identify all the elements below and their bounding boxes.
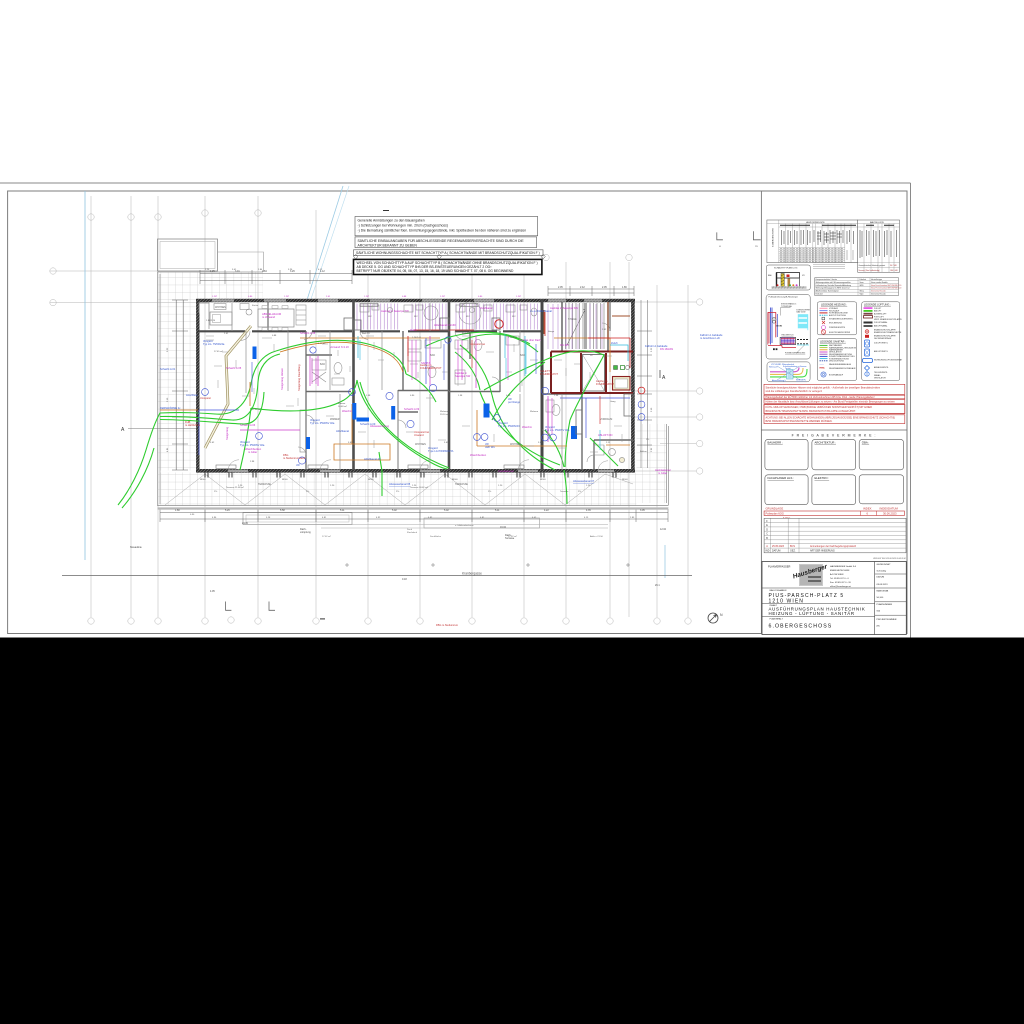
svg-text:Terrasse: Terrasse	[505, 537, 515, 540]
svg-text:1.20³: 1.20³	[516, 295, 521, 298]
svg-text:Gang: Gang	[610, 401, 616, 403]
svg-text:Generelle Anmäßungen zu den Ba: Generelle Anmäßungen zu den Bauangaben	[358, 219, 425, 223]
svg-text:2.42: 2.42	[580, 286, 585, 289]
svg-text:Attika +21.50: Attika +21.50	[590, 535, 604, 538]
svg-text:GEZEICHNET: GEZEICHNET	[877, 564, 892, 566]
svg-text:2%: 2%	[578, 491, 581, 493]
svg-text:PROJEKTNUMMER: PROJEKTNUMMER	[877, 619, 897, 621]
svg-text:VENTILATOR: VENTILATOR	[874, 377, 886, 380]
svg-text:Sämtliche brandgeschützten Häu: Sämtliche brandgeschützten Häuser sind m…	[766, 386, 881, 389]
svg-text:WOHNEN: WOHNEN	[215, 306, 226, 309]
svg-text:m²: m²	[590, 354, 593, 357]
svg-text:6.OBERGESCHOSS: 6.OBERGESCHOSS	[769, 624, 833, 630]
svg-text:2%: 2%	[214, 491, 217, 493]
svg-text:Waschbecken: Waschbecken	[470, 453, 487, 457]
svg-text:INDEX: INDEX	[863, 507, 872, 511]
svg-text:AUSSENLUFT: AUSSENLUFT	[874, 312, 887, 315]
svg-text:INDEXDATUM: INDEXDATUM	[880, 507, 899, 511]
svg-text:ZULUFTVENTIL: ZULUFTVENTIL	[874, 343, 888, 345]
svg-text:BODENABLAUF: BODENABLAUF	[829, 373, 844, 376]
svg-text:Bad 4.9: Bad 4.9	[362, 333, 370, 335]
svg-text:WC: WC	[512, 316, 516, 318]
svg-text:ZULUFT: ZULUFT	[874, 308, 882, 310]
svg-text:Steigstrang: Steigstrang	[225, 426, 229, 440]
svg-text:FUSSBODENHEIZUNG: FUSSBODENHEIZUNG	[785, 353, 806, 355]
svg-text:AUFPUTZLEITUNG: AUFPUTZLEITUNG	[829, 314, 846, 317]
svg-text:ENTLEERUNG: ENTLEERUNG	[829, 322, 842, 324]
svg-text:6.OBERGESCHOSS: 6.OBERGESCHOSS	[773, 228, 775, 247]
svg-text:RD40: RD40	[540, 479, 546, 481]
svg-text:12.02: 12.02	[660, 528, 667, 531]
svg-text:2.26/2.01: 2.26/2.01	[508, 337, 518, 339]
svg-text:BRANDSCHUTZKLAPPE: BRANDSCHUTZKLAPPE	[874, 329, 896, 332]
svg-text:Dachfläche: Dachfläche	[430, 536, 442, 538]
svg-text:Zimmer: Zimmer	[338, 402, 346, 405]
svg-text:ARCHITEKTUR BEKANNT ZU GEBEN: ARCHITEKTUR BEKANNT ZU GEBEN	[358, 244, 418, 248]
svg-text:Abluftventilator Sammelgerät: Abluftventilator Sammelgerät	[816, 290, 840, 293]
svg-text:5.02: 5.02	[444, 509, 449, 512]
svg-text:1.80: 1.80	[175, 509, 180, 512]
svg-text:TELLERVENTIL: TELLERVENTIL	[874, 372, 888, 374]
svg-text:WC: WC	[368, 316, 372, 318]
svg-text:SÄMTLICHE EINBAUANGABEN FÜR AB: SÄMTLICHE EINBAUANGABEN FÜR ABSCHLIESSEN…	[358, 239, 525, 243]
svg-text:Type LG PWRSONTA: Type LG PWRSONTA	[428, 449, 454, 453]
svg-text:Vexo Front Insertion BETONFIXE: Vexo Front Insertion BETONFIXE 120	[871, 284, 901, 287]
svg-text:Typ LG. PWRSV 40a: Typ LG. PWRSV 40a	[545, 428, 570, 432]
svg-text:Schacht A.09: Schacht A.09	[360, 422, 376, 426]
svg-text:BRANDSCHUTZKLAPPE: BRANDSCHUTZKLAPPE	[874, 334, 896, 337]
svg-text:DATUM: DATUM	[877, 576, 885, 579]
svg-text:Schacht A 05: Schacht A 05	[226, 366, 242, 370]
svg-text:Abwasserstrang lt.: Abwasserstrang lt.	[772, 379, 786, 382]
svg-text:4.35: 4.35	[586, 509, 591, 512]
svg-text:Typ LG. PWRSON: Typ LG. PWRSON	[498, 424, 520, 428]
svg-text:SÄMTLICHE WOHNUNGSSCHACHTE MIT: SÄMTLICHE WOHNUNGSSCHACHTE MIT SCHACHTTY…	[356, 251, 540, 255]
svg-text:41.02 m²: 41.02 m²	[252, 408, 261, 411]
svg-text:Herstellertype: Herstellertype	[871, 278, 882, 281]
svg-text:Polierplan 6OG: Polierplan 6OG	[766, 512, 784, 516]
svg-text:HKV-VERTLG: HKV-VERTLG	[782, 334, 794, 336]
svg-text:(H): (H)	[877, 626, 880, 628]
svg-text:ELEKTROHEIZKÖRPER: ELEKTROHEIZKÖRPER	[829, 331, 851, 334]
svg-text:REGENWASSER-NOTABLAUF: REGENWASSER-NOTABLAUF	[829, 367, 857, 370]
svg-text:Fabrikat: Fabrikat	[860, 278, 867, 281]
svg-text:Ausblas in Saveripa SW: Ausblas in Saveripa SW	[381, 309, 409, 313]
svg-text:RD40: RD40	[368, 479, 374, 481]
svg-text:Waschm.: Waschm.	[342, 409, 353, 413]
svg-text:ART DER ÄNDERUNG: ART DER ÄNDERUNG	[810, 550, 835, 553]
svg-text:BRANDSCHUTZMANSCHETTE: BRANDSCHUTZMANSCHETTE	[874, 331, 902, 334]
svg-text:WOHNGRPL: WOHNGRPL	[796, 380, 806, 382]
svg-text:───: ───	[819, 364, 825, 366]
svg-text:F R E I G A B E V E R M E R K: F R E I G A B E V E R M E R K E :	[792, 433, 877, 437]
svg-text:Ausblas über Dach: Ausblas über Dach	[519, 338, 541, 342]
svg-text:ABSAUGVENTIL: ABSAUGVENTIL	[874, 366, 889, 369]
svg-text:LEGENDE LÜFTUNG :: LEGENDE LÜFTUNG :	[864, 302, 891, 306]
svg-text:Fußbodenheizung/E-Heizkörper: Fußbodenheizung/E-Heizkörper	[769, 295, 799, 298]
svg-text:ELEKTRO :: ELEKTRO :	[815, 476, 830, 480]
svg-text:m.Vorwand: m.Vorwand	[262, 315, 276, 319]
svg-text:2.84: 2.84	[262, 270, 267, 273]
svg-text:ABLUFTVENTIL: ABLUFTVENTIL	[874, 350, 888, 353]
svg-text:m.Helzluftum: m.Helzluftum	[185, 423, 200, 427]
svg-text:1.20³: 1.20³	[284, 295, 289, 298]
svg-text:ZIMMER: ZIMMER	[330, 418, 340, 421]
svg-text:Fußbodenhzg.-Verteiler/Sammler: Fußbodenhzg.-Verteiler/Sammler/Anbindung	[816, 284, 852, 287]
svg-text:FOHNBKUPOT: FOHNBKUPOT	[596, 382, 614, 386]
svg-text:Dach: Dach	[407, 529, 413, 531]
svg-text:Intervento Recedo: Intervento Recedo	[871, 290, 886, 293]
svg-text:50;100: 50;100	[877, 597, 884, 599]
svg-text:Ausblaskanal: Ausblaskanal	[498, 469, 514, 473]
svg-text:HAUSBERGER GmbH 3-6: HAUSBERGER GmbH 3-6	[830, 565, 857, 568]
svg-text:PUMPENGRUPPE: PUMPENGRUPPE	[829, 327, 846, 329]
svg-text:Vexo comfort flexible: Vexo comfort flexible	[871, 281, 888, 284]
svg-text:2.26/2.01: 2.26/2.01	[412, 337, 422, 339]
svg-text:1.25: 1.25	[210, 270, 215, 273]
svg-text:4.05: 4.05	[210, 590, 215, 593]
svg-text:Stiege: Stiege	[548, 330, 555, 333]
svg-text:WOHNEN: WOHNEN	[415, 443, 426, 446]
svg-text:D: D	[766, 528, 768, 531]
svg-text:2%: 2%	[306, 491, 309, 493]
svg-text:FOHNSERKUPOT: FOHNSERKUPOT	[420, 366, 442, 370]
svg-text:WC: WC	[466, 316, 470, 318]
svg-text:BAD: BAD	[430, 354, 435, 357]
svg-text:Vorraum: Vorraum	[800, 365, 807, 368]
svg-text:24.80: 24.80	[242, 522, 249, 525]
svg-text:WOHNUNGSLÜFTUNGSGERÄT: WOHNUNGSLÜFTUNGSGERÄT	[874, 359, 903, 362]
svg-text:5.11: 5.11	[340, 509, 345, 512]
svg-text:WC: WC	[414, 316, 418, 318]
svg-text:-) Schlützungen bei Wohnungen: -) Schlützungen bei Wohnungen min. 20cm …	[358, 224, 448, 228]
svg-text:Saveripa SW: Saveripa SW	[455, 374, 471, 378]
svg-text:Abluftkanal: Abluftkanal	[336, 429, 349, 433]
svg-text:HEIZKÖRPERLISTE: HEIZKÖRPERLISTE	[806, 221, 825, 224]
svg-text:VERZ. BRANDSCHUTZKLAPPE: VERZ. BRANDSCHUTZKLAPPE	[874, 318, 902, 321]
svg-text:Niveaulinie: Niveaulinie	[130, 546, 142, 549]
svg-text:m.Anschluss Luft: m.Anschluss Luft	[700, 336, 720, 340]
svg-text:Abwasserkanal 05: Abwasserkanal 05	[389, 482, 411, 486]
svg-text:Küche: Küche	[252, 305, 259, 307]
svg-text:Bad 4.9: Bad 4.9	[462, 333, 470, 335]
svg-text:Fax. 01/616 87 0 - 20: Fax. 01/616 87 0 - 20	[830, 582, 852, 584]
svg-text:KANAL-: KANAL-	[874, 374, 881, 377]
svg-text:Steigstrang Rauchfang: Steigstrang Rauchfang	[297, 364, 301, 391]
svg-text:10 kW: 10 kW	[776, 326, 783, 328]
svg-text:0.18: 0.18	[402, 578, 407, 581]
svg-text:Vexo: Vexo	[860, 282, 864, 284]
svg-text:BAUTEILLISTE: BAUTEILLISTE	[870, 221, 885, 224]
svg-text:3.05: 3.05	[640, 509, 645, 512]
svg-text:2.05: 2.05	[558, 286, 563, 289]
svg-text:FÄKALIENHEBEANLAGE: FÄKALIENHEBEANLAGE	[829, 363, 852, 366]
svg-text:TERRASSE: TERRASSE	[258, 483, 271, 486]
svg-text:DATUM: DATUM	[772, 550, 780, 553]
svg-text:Typ LG. 75/60/24a: Typ LG. 75/60/24a	[203, 342, 225, 346]
svg-text:RD40: RD40	[622, 479, 628, 481]
svg-text:Schacht A 09: Schacht A 09	[404, 407, 420, 411]
svg-text:ÖBA :: ÖBA :	[862, 441, 870, 445]
svg-text:09.08.2023: 09.08.2023	[877, 584, 889, 586]
svg-text:30.06.2023: 30.06.2023	[883, 512, 897, 516]
svg-text:Schacht A 08: Schacht A 08	[300, 331, 316, 335]
svg-text:Anmerkungen der Fachbegehungsp: Anmerkungen der Fachbegehungsprotokoll	[810, 545, 856, 548]
svg-text:MASSSTAB: MASSSTAB	[877, 590, 889, 593]
svg-text:PLANINHALT: PLANINHALT	[770, 618, 784, 621]
svg-text:BRANDSCHUTZMANSCHETTE BZW. BRA: BRANDSCHUTZMANSCHETTE BZW. BRANDSCHUTZKL…	[766, 410, 857, 413]
svg-text:JW: JW	[296, 463, 300, 467]
svg-text:4.15 m²: 4.15 m²	[318, 342, 326, 345]
svg-text:DRUCKLEITUNG: DRUCKLEITUNG	[829, 361, 844, 363]
svg-text:FOHNROLPOT: FOHNROLPOT	[540, 372, 558, 376]
svg-text:26.1: 26.1	[655, 584, 660, 587]
svg-text:Wohnen: Wohnen	[440, 411, 449, 413]
svg-text:FACHPLANER HLS :: FACHPLANER HLS :	[768, 476, 795, 480]
svg-text:16.02: 16.02	[500, 526, 507, 529]
svg-text:BAD 500W: BAD 500W	[797, 311, 806, 314]
svg-text:office@hausberger.at: office@hausberger.at	[830, 585, 851, 588]
svg-text:C: C	[766, 533, 768, 536]
svg-text:DN 125: DN 125	[560, 343, 569, 347]
svg-text:2%: 2%	[646, 439, 649, 441]
svg-text:1.86: 1.86	[622, 286, 627, 289]
svg-text:vorsprung: vorsprung	[300, 531, 311, 534]
svg-text:ABLUFTKANAL: ABLUFTKANAL	[874, 325, 887, 328]
svg-text:1.20³: 1.20³	[212, 295, 217, 298]
svg-text:Summe (Total selbständig): Summe (Total selbständig)	[859, 269, 881, 272]
svg-text:2.05: 2.05	[602, 286, 607, 289]
svg-text:RD40: RD40	[452, 479, 458, 481]
svg-text:o.l. Attikaoberkante: o.l. Attikaoberkante	[455, 524, 474, 527]
svg-text:SCHACHTTYP A/B 6.OG: SCHACHTTYP A/B 6.OG	[774, 266, 798, 269]
svg-text:Flachdach: Flachdach	[407, 532, 418, 534]
svg-text:Zuluftkanal: Zuluftkanal	[480, 306, 493, 310]
svg-text:-) Die Bemaßung sämtlicher füe: -) Die Bemaßung sämtlicher füen. Einrich…	[358, 229, 527, 233]
svg-text:Wexa: Wexa	[860, 291, 865, 293]
svg-text:FBG m.Steliumrum: FBG m.Steliumrum	[436, 623, 458, 627]
svg-text:Kranbergasse: Kranbergasse	[462, 571, 482, 575]
svg-text:IND: IND	[765, 550, 769, 553]
svg-text:Anschluss: Anschluss	[186, 393, 199, 397]
svg-text:ENERGIETECHNIK: ENERGIETECHNIK	[830, 570, 850, 572]
svg-text:Fallrohr A.Gebäude: Fallrohr A.Gebäude	[645, 344, 668, 348]
svg-text:Jahr WC: Jahr WC	[485, 445, 495, 449]
svg-text:DECKENMONTAGE: DECKENMONTAGE	[874, 337, 892, 340]
svg-text:per Ranga: per Ranga	[508, 400, 521, 404]
svg-text:BETRIFFT NUR OBJEKTE 04, 05, 0: BETRIFFT NUR OBJEKTE 04, 05, 06, 07, 13,…	[357, 269, 514, 273]
svg-text:Typ LG. PWRSV 40a: Typ LG. PWRSV 40a	[240, 443, 265, 447]
svg-text:ZULUFTKANAL: ZULUFTKANAL	[874, 321, 887, 324]
svg-text:Abluftkanal DN160: Abluftkanal DN160	[434, 323, 456, 327]
svg-text:RD40: RD40	[282, 479, 288, 481]
svg-text:RD40: RD40	[200, 479, 206, 481]
svg-text:Gesamtheizlast Gebäude gesamt: Gesamtheizlast Gebäude gesamt	[859, 264, 886, 267]
svg-text:30.7 kW: 30.7 kW	[890, 265, 897, 267]
svg-text:1.20³: 1.20³	[364, 295, 369, 298]
svg-text:2%: 2%	[396, 491, 399, 493]
svg-text:Balkon: Balkon	[640, 451, 647, 453]
svg-text:BAD: BAD	[520, 354, 525, 357]
svg-text:Vilpe: Vilpe	[860, 293, 864, 295]
svg-text:1.80/2.20: 1.80/2.20	[206, 320, 216, 322]
svg-text:sind die Lüftleitungen brandbe: sind die Lüftleitungen brandbehördlich z…	[766, 390, 823, 393]
svg-text:ABLUFT: ABLUFT	[874, 310, 882, 313]
svg-text:STIEGE: STIEGE	[568, 318, 577, 321]
svg-text:m.Steliumrumwand: m.Steliumrumwand	[283, 456, 306, 460]
svg-text:Vexo Front Insertion BETONFIXE: Vexo Front Insertion BETONFIXE 120	[871, 287, 901, 290]
svg-text:180.5 kW: 180.5 kW	[890, 270, 898, 272]
svg-text:Zuluft: Zuluft	[410, 328, 417, 332]
svg-text:5.02: 5.02	[392, 509, 397, 512]
svg-text:Umspeist: Umspeist	[200, 396, 211, 400]
svg-text:Schacht A.01: Schacht A.01	[160, 367, 176, 371]
svg-text:2%: 2%	[488, 491, 491, 493]
svg-text:Wohnungsstation inkl. Wärmemen: Wohnungsstation inkl. Wärmemengenzähler	[816, 281, 852, 284]
svg-text:29.10 m²: 29.10 m²	[440, 413, 449, 416]
svg-text:HEIZUNG - LÜFTUNG - SANITÄR: HEIZUNG - LÜFTUNG - SANITÄR	[769, 611, 855, 616]
svg-text:RWA: RWA	[820, 367, 825, 370]
svg-text:Wohnen: Wohnen	[530, 411, 539, 413]
svg-text:1210 WIEN: 1210 WIEN	[769, 599, 804, 605]
svg-text:Steigstrang Hülsen: Steigstrang Hülsen	[280, 368, 284, 390]
svg-text:BCS: BCS	[790, 545, 795, 548]
svg-text:GEZ.: GEZ.	[790, 550, 796, 553]
svg-text:PLANNUMMER: PLANNUMMER	[877, 603, 893, 606]
svg-text:FERNWÄRME 2x: FERNWÄRME 2x	[160, 406, 181, 410]
svg-text:25.05.2023: 25.05.2023	[772, 545, 785, 548]
svg-text:1.20³: 1.20³	[440, 295, 445, 298]
svg-text:Zuluft: Zuluft	[611, 341, 618, 345]
svg-text:KÜHL-/UMLUFTLEISUNGEN, OWB (BU: KÜHL-/UMLUFTLEISUNGEN, OWB (BUDGE UMRÜCK…	[766, 406, 873, 409]
svg-text:LEGENDE SANITÄR :: LEGENDE SANITÄR :	[820, 339, 846, 343]
svg-text:Höhen der Hausläufe bzw. Ansch: Höhen der Hausläufe bzw. Anschlüsse/Lüft…	[766, 400, 896, 403]
svg-text:Abwasserkanal 07: Abwasserkanal 07	[573, 479, 595, 483]
svg-text:5.26: 5.26	[225, 509, 230, 512]
svg-text:Komponentenliste / Geräte: Komponentenliste / Geräte	[816, 278, 837, 281]
svg-text:WOHNEN: WOHNEN	[510, 443, 521, 446]
svg-text:VERLEGT WG.5/23.08.2023 09:43:: VERLEGT WG.5/23.08.2023 09:43:26 M	[873, 558, 906, 560]
svg-text:Wohnungslüftungsgerät m.WRG de: Wohnungslüftungsgerät m.WRG dezentral	[816, 287, 850, 290]
svg-text:PLANVERFASSER: PLANVERFASSER	[768, 565, 790, 569]
svg-text:Zu-Luft/Abluftkanal: Zu-Luft/Abluftkanal	[530, 309, 552, 313]
svg-text:VORRAUM: VORRAUM	[600, 418, 612, 421]
svg-text:ACHTUNG: BEI ALLEN SCHÄCHTE WO: ACHTUNG: BEI ALLEN SCHÄCHTE WOHNUNGEN (A…	[766, 416, 896, 419]
svg-text:Abluftkanal 40: Abluftkanal 40	[364, 457, 381, 461]
svg-text:4.22: 4.22	[544, 509, 549, 512]
svg-text:STRANGREGULIERVENTIL: STRANGREGULIERVENTIL	[829, 317, 853, 320]
svg-text:Schmidby: Schmidby	[877, 571, 888, 573]
svg-text:BAUVORHABEN: BAUVORHABEN	[770, 589, 787, 592]
svg-text:Ausblas in Saveripa SW: Ausblas in Saveripa SW	[550, 306, 578, 310]
svg-text:Waschm: Waschm	[522, 425, 532, 429]
svg-text:5.58: 5.58	[280, 509, 285, 512]
svg-text:Planungsbedarf der EÛTRR möbli: Planungsbedarf der EÛTRR möblicher mit V…	[766, 396, 875, 399]
svg-text:TERRASSE: TERRASSE	[455, 483, 468, 486]
svg-text:BZW. BRANDSCHUTZMANSCHETTE WER: BZW. BRANDSCHUTZMANSCHETTE WERDEN MÜSSEN…	[766, 420, 833, 423]
svg-text:GRUNDLAGE: GRUNDLAGE	[766, 507, 784, 511]
svg-text:16.48 m²: 16.48 m²	[338, 405, 347, 408]
svg-text:BAUHERR :: BAUHERR :	[768, 441, 783, 445]
svg-text:27.45 m²: 27.45 m²	[214, 350, 223, 353]
svg-text:Wohnraum: Wohnraum	[769, 365, 778, 368]
svg-text:A-1230 WIEN: A-1230 WIEN	[830, 573, 844, 576]
svg-text:LEGENDE HEIZUNG :: LEGENDE HEIZUNG :	[821, 302, 848, 306]
svg-text:Erdkabel: Erdkabel	[816, 293, 824, 295]
svg-text:17.02 m²: 17.02 m²	[322, 535, 331, 538]
svg-text:5.11: 5.11	[495, 509, 500, 512]
svg-text:Tel. 01/616 87 0 - 0: Tel. 01/616 87 0 - 0	[830, 578, 850, 580]
svg-text:Schacht A 06: Schacht A 06	[240, 423, 256, 427]
svg-text:Vorwand h=1.20: Vorwand h=1.20	[330, 345, 349, 349]
svg-text:m.Gitter: m.Gitter	[658, 471, 667, 475]
svg-text:Terrasse: Terrasse	[560, 490, 569, 493]
svg-text:Umspeist bei: Umspeist bei	[470, 342, 485, 346]
svg-text:Typ LG. PWRSV 40a: Typ LG. PWRSV 40a	[310, 421, 335, 425]
svg-text:Unwand: Unwand	[414, 433, 424, 437]
svg-text:Intervento Recedo: Intervento Recedo	[871, 292, 886, 295]
svg-text:ARCHITEKTUR :: ARCHITEKTUR :	[815, 441, 837, 445]
svg-text:BAD: BAD	[320, 363, 325, 366]
svg-text:m.Gitter: m.Gitter	[248, 450, 257, 454]
